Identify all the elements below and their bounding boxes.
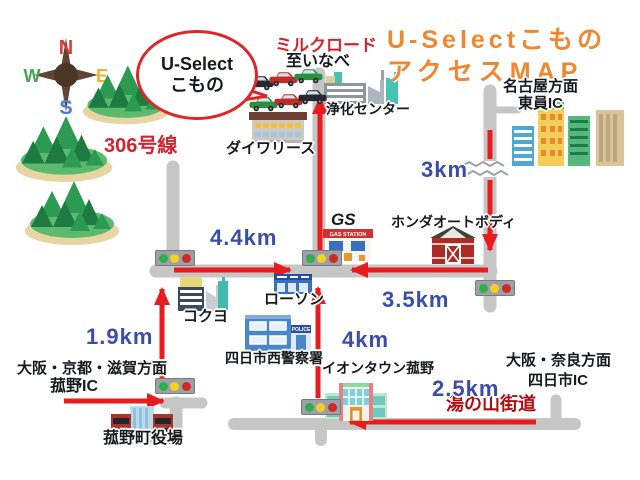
yellow-light xyxy=(170,382,179,391)
police-station-icon: POLICE xyxy=(245,311,311,351)
yokkaichi-ic-label: 四日市IC xyxy=(528,373,588,389)
honda-auto-body-label: ホンダオートボディ xyxy=(391,215,516,230)
traffic-light xyxy=(475,280,515,296)
yellow-light xyxy=(490,284,499,293)
osaka-nara-label: 大阪・奈良方面 xyxy=(506,353,611,369)
traffic-light xyxy=(302,250,342,266)
distance-4km: 4km xyxy=(342,328,389,351)
red-light xyxy=(328,403,337,412)
green-light xyxy=(305,403,314,412)
shop-name-line2: こもの xyxy=(170,75,224,96)
traffic-light xyxy=(155,378,195,394)
green-light xyxy=(159,382,168,391)
distance-3km: 3km xyxy=(421,158,468,181)
kokuyo-icon xyxy=(178,277,230,311)
red-light xyxy=(182,254,191,263)
lawson-label: ローソン xyxy=(264,292,324,308)
gas-station-label: GS xyxy=(331,211,356,229)
forest-island-icon xyxy=(22,170,122,252)
traffic-light xyxy=(301,399,341,415)
road-break-mark xyxy=(462,161,508,177)
yellow-light xyxy=(170,254,179,263)
to-inabe-label: 至いなべ xyxy=(286,54,350,71)
access-map: N W E S xyxy=(0,0,640,480)
aeon-town-label: イオンタウン菰野 xyxy=(322,361,434,376)
gas-station-sign: GAS STATION xyxy=(330,232,367,238)
distance-3-5km: 3.5km xyxy=(382,288,449,311)
distance-2-5km: 2.5km xyxy=(432,377,499,400)
komono-ic-label: 菰野IC xyxy=(50,379,98,396)
police-station-label: 四日市西警察署 xyxy=(225,351,323,366)
compass-west: W xyxy=(24,66,41,86)
osaka-kyoto-shiga-label: 大阪・京都・滋賀方面 xyxy=(17,361,167,377)
shop-callout-bubble: U-Select こもの xyxy=(136,30,258,120)
toin-ic-label: 東員IC xyxy=(518,96,563,112)
kokuyo-label: コクヨ xyxy=(183,309,228,325)
map-title-line1: U-Selectこもの xyxy=(387,20,606,56)
shop-name-line1: U-Select xyxy=(161,54,233,75)
honda-auto-body-icon xyxy=(430,226,476,264)
distance-4-4km: 4.4km xyxy=(210,226,277,249)
green-light xyxy=(306,254,315,263)
red-light xyxy=(502,284,511,293)
compass-north: N xyxy=(59,37,73,59)
route-306-label: 306号線 xyxy=(104,136,177,157)
yellow-light xyxy=(317,254,326,263)
purification-center-label: 浄化センター xyxy=(326,102,410,117)
police-sign: POLICE xyxy=(292,327,311,333)
red-light xyxy=(329,254,338,263)
distance-1-9km: 1.9km xyxy=(86,325,153,348)
red-light xyxy=(182,382,191,391)
town-hall-label: 菰野町役場 xyxy=(103,431,183,448)
yellow-light xyxy=(316,403,325,412)
traffic-light xyxy=(155,250,195,266)
nagoya-direction-label: 名古屋方面 xyxy=(503,79,578,95)
green-light xyxy=(159,254,168,263)
green-light xyxy=(479,284,488,293)
daiwa-lease-label: ダイワリース xyxy=(226,141,315,157)
